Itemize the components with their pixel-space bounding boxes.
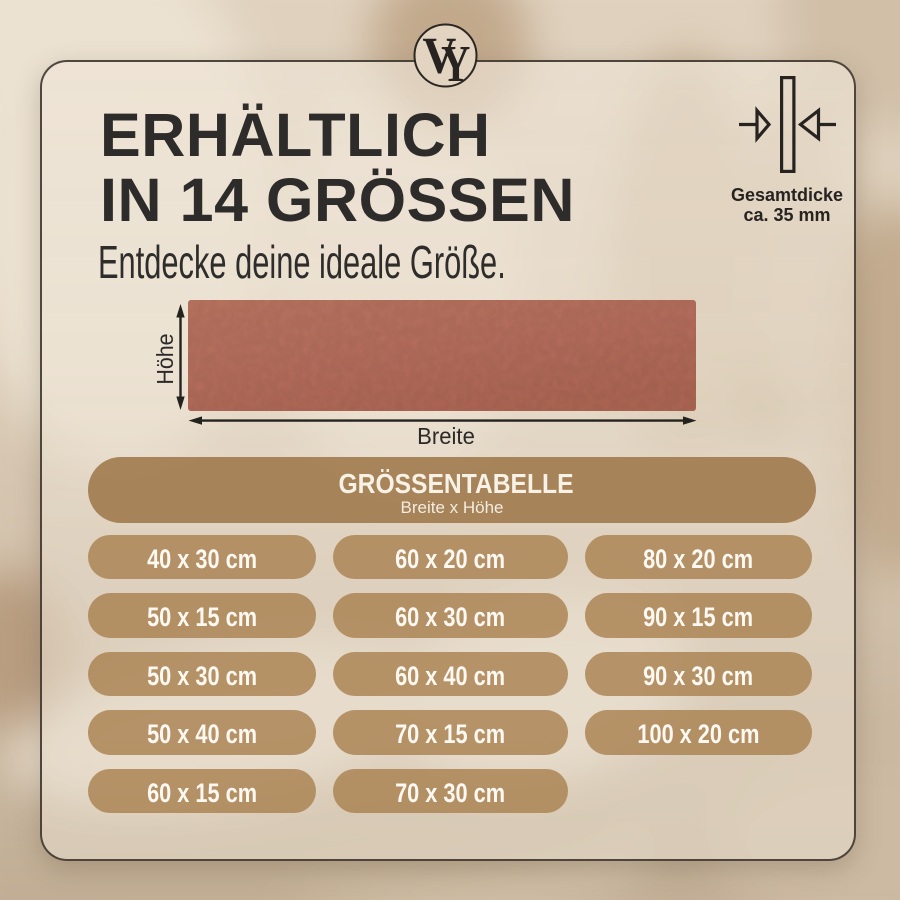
svg-text:Y: Y <box>441 35 470 93</box>
